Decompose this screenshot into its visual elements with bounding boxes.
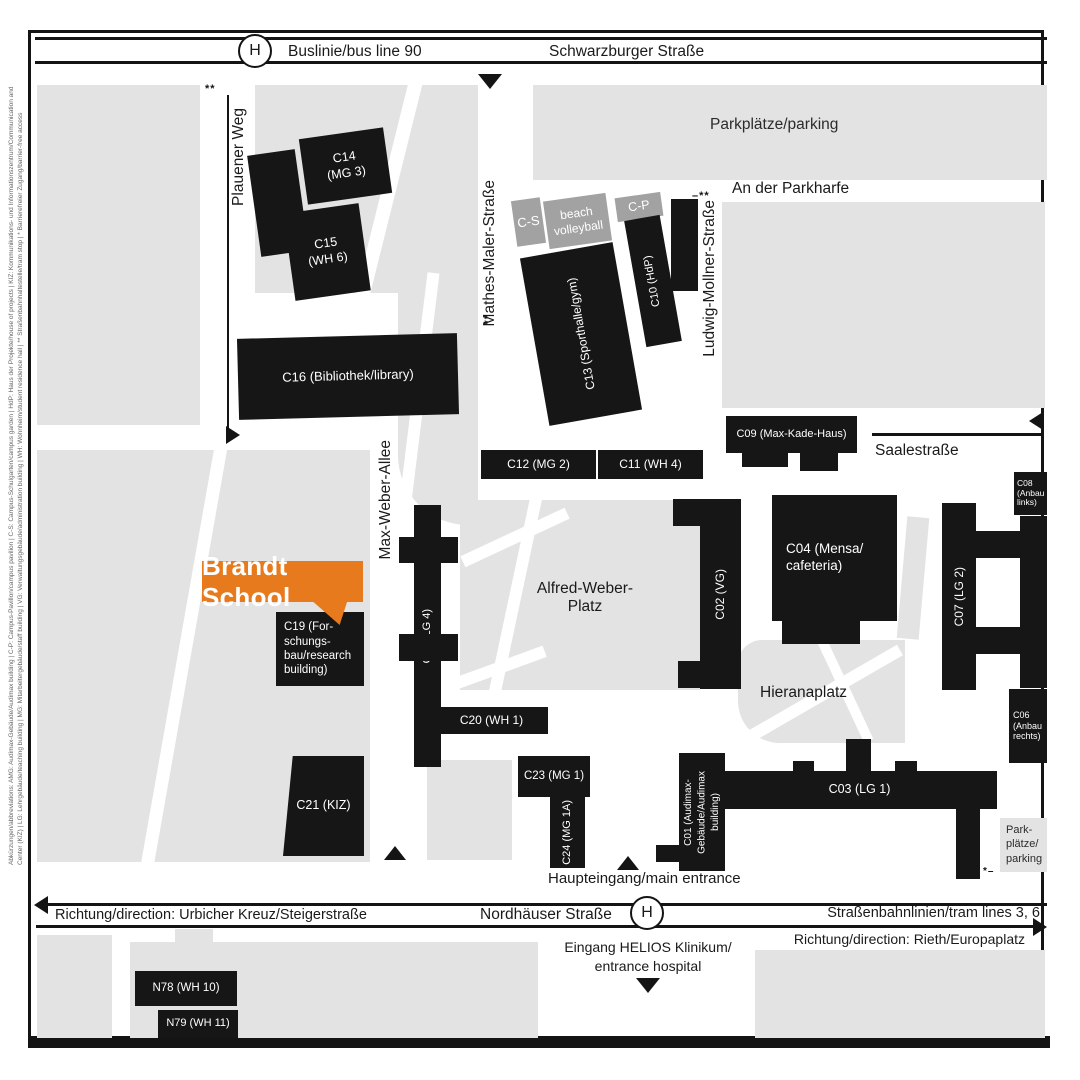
access-mark: *–: [983, 866, 994, 877]
building-c18-wing: [399, 537, 458, 563]
building-c11: C11 (WH 4): [598, 450, 703, 479]
building-c16-label: C16 (Bibliothek/library): [282, 367, 414, 387]
building-c23: C23 (MG 1): [518, 756, 590, 797]
building-c20-label: C20 (WH 1): [460, 713, 523, 728]
building-c18-wing: [399, 634, 458, 661]
building-c04: C04 (Mensa/ cafeteria): [772, 495, 897, 621]
building-c06-label: C06 (Anbau rechts): [1013, 710, 1042, 742]
saalestrasse-line: [872, 433, 1044, 436]
building-c15-label: C15 (WH 6): [305, 234, 349, 270]
building-c21: C21 (KIZ): [283, 756, 364, 856]
parking-bottom-label: Park- plätze/ parking: [1006, 823, 1042, 866]
building-c09: C09 (Max-Kade-Haus): [726, 416, 857, 453]
tram-stop-mark: **: [205, 83, 216, 95]
green-area-bottom-right: [755, 950, 1045, 1038]
building-cs: C-S: [511, 197, 546, 247]
building-c14-label: C14 (MG 3): [324, 148, 367, 184]
building-beach-volleyball: beach volleyball: [543, 193, 612, 249]
main-entrance-arrow-icon: [384, 846, 406, 860]
max-weber-allee-label: Max-Weber-Allee: [377, 440, 395, 559]
parkharfe-parking-area: [722, 202, 1045, 408]
building-c04-wing: [782, 621, 860, 644]
helios-entrance-label: Eingang HELIOS Klinikum/ entrance hospit…: [560, 938, 736, 976]
schwarzburger-strasse-label: Schwarzburger Straße: [549, 43, 704, 61]
entrance-arrow-top-icon: [478, 74, 502, 89]
building-cs-label: C-S: [516, 212, 540, 231]
building-n79-label: N79 (WH 11): [166, 1017, 229, 1031]
building-c04-label: C04 (Mensa/ cafeteria): [786, 541, 863, 575]
building-c03-wing: [895, 761, 917, 771]
bottom-road-line-south: [36, 925, 1036, 928]
green-area-bottom-left: [37, 935, 112, 1038]
building-c20: C20 (WH 1): [435, 707, 548, 734]
building-c13-label: C13 (Sporthalle/gym): [564, 277, 598, 391]
building-c03-south-wing: [956, 809, 980, 879]
tram-stop-mark: **: [482, 314, 494, 325]
direction-right-label: Richtung/direction: Rieth/Europaplatz: [783, 931, 1025, 947]
building-c06: C06 (Anbau rechts): [1009, 689, 1047, 763]
building-cp-label: C-P: [627, 198, 650, 216]
bus-stop-icon: H: [238, 34, 272, 68]
building-c07-wing: [976, 627, 1020, 654]
building-c02-wing: [678, 661, 700, 688]
saalestrasse-label: Saalestraße: [875, 442, 959, 460]
building-n79: N79 (WH 11): [158, 1010, 238, 1038]
alfred-weber-platz-label: Alfred-Weber- Platz: [505, 580, 665, 616]
building-c09-label: C09 (Max-Kade-Haus): [736, 428, 846, 442]
hieranaplatz-label: Hieranaplatz: [760, 684, 847, 702]
building-c02-label: C02 (VG): [713, 569, 728, 620]
building-c15: C15 (WH 6): [283, 203, 371, 301]
plauener-weg-line: [227, 95, 229, 428]
mathes-maler-strasse-label: Mathes-Maler-Straße: [481, 180, 499, 326]
building-c03-wing: [846, 739, 871, 771]
building-c02-wing: [673, 499, 700, 526]
building-c07-wing: [976, 531, 1020, 558]
parking-top-label: Parkplätze/parking: [710, 116, 838, 134]
building-c10-label: C10 (HdP): [642, 254, 665, 308]
building-c03: C03 (LG 1): [722, 771, 997, 809]
campus-map: Abkürzungen/abbreviations: AMG: Audimax-…: [0, 0, 1080, 1080]
direction-left-label: Richtung/direction: Urbicher Kreuz/Steig…: [55, 907, 367, 923]
building-c08: C08 (Anbau links): [1014, 472, 1047, 515]
building-c16: C16 (Bibliothek/library): [237, 333, 459, 420]
building-c19-label: C19 (For- schungs- bau/research building…: [284, 620, 351, 678]
top-road-line-south: [35, 61, 1047, 64]
plauener-weg-arrow-icon: [226, 426, 240, 444]
building-n78-label: N78 (WH 10): [152, 981, 219, 995]
an-der-parkharfe-label: An der Parkharfe: [732, 180, 849, 198]
building-c11-label: C11 (WH 4): [619, 457, 681, 472]
bus-stop-letter: H: [249, 42, 261, 60]
building-c01-wing: [656, 845, 679, 862]
building-c03-label: C03 (LG 1): [829, 782, 891, 798]
building-c12-label: C12 (MG 2): [507, 457, 570, 472]
bus-stop-letter: H: [641, 904, 653, 922]
brandt-school-callout: Brandt School: [202, 561, 363, 602]
top-road-line-north: [35, 37, 1047, 40]
bus-stop-icon-bottom: H: [630, 896, 664, 930]
main-entrance-arrow-icon: [617, 856, 639, 870]
building-c23-label: C23 (MG 1): [524, 769, 584, 783]
building-c03-wing: [793, 761, 814, 771]
building-c07: C07 (LG 2): [942, 503, 976, 690]
nordhaeuser-strasse-label: Nordhäuser Straße: [480, 906, 612, 924]
building-c08-label: C08 (Anbau links): [1017, 479, 1044, 508]
green-area-center-square: [427, 760, 512, 860]
helios-entrance-arrow-icon: [636, 978, 660, 993]
abbreviation-legend: Abkürzungen/abbreviations: AMG: Audimax-…: [8, 85, 28, 865]
tram-lines-label: Straßenbahnlinien/tram lines 3, 6: [800, 905, 1040, 921]
bus-line-label: Buslinie/bus line 90: [288, 43, 422, 61]
green-area-top-left: [37, 85, 200, 425]
building-c01: C01 (Audimax- Gebäude/Audimax building): [679, 753, 725, 871]
building-n78: N78 (WH 10): [135, 971, 237, 1006]
building-c09-wing: [800, 453, 838, 471]
main-entrance-label: Haupteingang/main entrance: [548, 870, 741, 887]
legend-line-2: Center (KIZ) | LG: Lehrgebäude/teaching …: [17, 85, 24, 865]
building-c07-label: C07 (LG 2): [952, 567, 967, 626]
saalestrasse-arrow-icon: [1029, 412, 1043, 430]
building-c19: C19 (For- schungs- bau/research building…: [276, 612, 364, 686]
green-area-bottom-step: [175, 929, 213, 942]
building-unlabeled: [671, 199, 698, 291]
legend-line-1: Abkürzungen/abbreviations: AMG: Audimax-…: [8, 85, 15, 865]
building-c24-label: C24 (MG 1A): [561, 800, 575, 865]
beach-volleyball-label: beach volleyball: [551, 203, 604, 240]
building-c01-label: C01 (Audimax- Gebäude/Audimax building): [682, 771, 723, 854]
building-c09-wing: [742, 453, 788, 467]
road-arrow-left-icon: [34, 896, 48, 914]
plauener-weg-label: Plauener Weg: [230, 108, 248, 206]
building-c14: C14 (MG 3): [299, 127, 392, 204]
ludwig-mollner-strasse-label: Ludwig-Mollner-Straße: [701, 200, 719, 357]
building-c12: C12 (MG 2): [481, 450, 596, 479]
building-c21-label: C21 (KIZ): [296, 798, 350, 814]
building-c02: C02 (VG): [700, 499, 741, 689]
building-c24: C24 (MG 1A): [550, 797, 585, 868]
building-c07-east-wing: [1020, 516, 1047, 688]
